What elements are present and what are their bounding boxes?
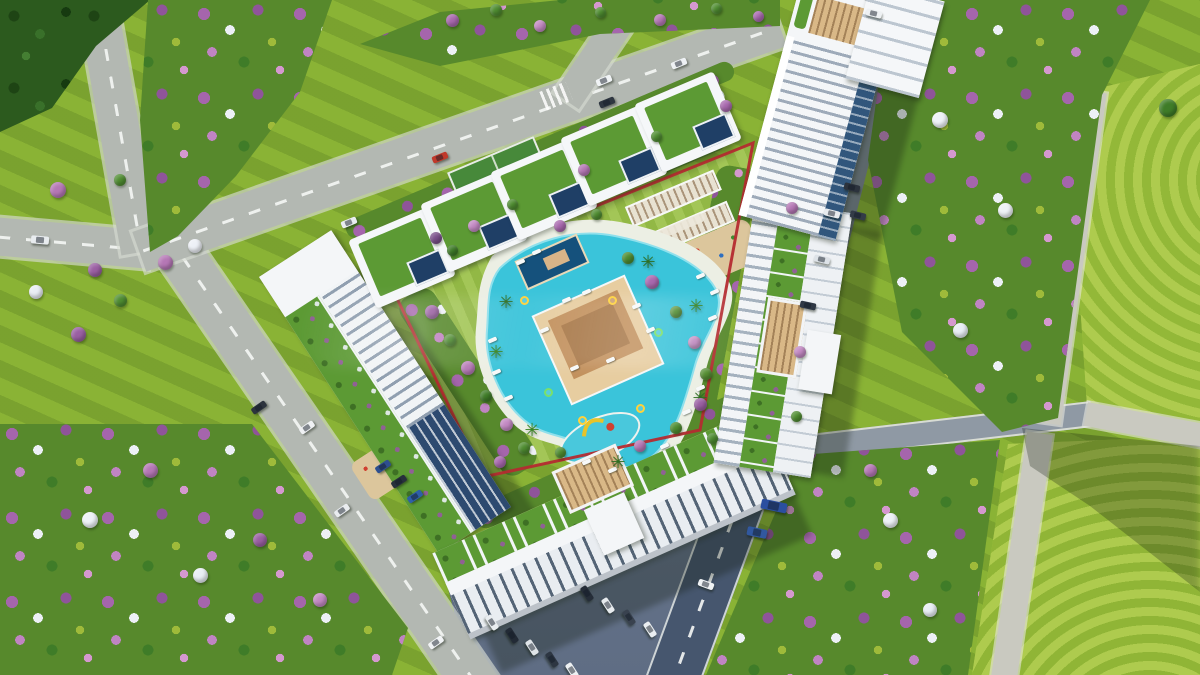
car — [406, 489, 423, 504]
car — [643, 620, 658, 637]
tree — [114, 294, 127, 307]
tree — [50, 182, 66, 198]
tree — [253, 533, 267, 547]
tree — [430, 232, 442, 244]
car — [823, 208, 840, 219]
tree — [188, 239, 202, 253]
car — [545, 650, 560, 667]
car — [485, 613, 500, 630]
tree — [883, 513, 898, 528]
car — [670, 57, 687, 69]
car — [760, 498, 788, 513]
tree — [654, 14, 666, 26]
tree — [468, 220, 480, 232]
car — [427, 635, 444, 650]
watermark-overlay — [300, 296, 840, 368]
tree — [711, 3, 722, 14]
tree — [480, 390, 492, 402]
tree — [651, 131, 662, 142]
lounger — [709, 288, 719, 295]
car — [697, 578, 714, 590]
tree — [193, 568, 208, 583]
lounger — [531, 248, 541, 255]
car — [565, 661, 580, 675]
car — [598, 96, 615, 108]
tree — [595, 7, 606, 18]
tree — [753, 11, 764, 22]
car — [31, 235, 50, 245]
palm-tree: ✳ — [639, 253, 657, 271]
lounger — [491, 368, 501, 375]
tree — [953, 323, 968, 338]
tree — [518, 442, 530, 454]
tree — [707, 433, 718, 444]
tree — [700, 368, 712, 380]
car — [298, 420, 315, 435]
tree — [634, 440, 646, 452]
lounger — [581, 288, 591, 295]
tree — [554, 220, 566, 232]
tree — [998, 203, 1013, 218]
tree — [158, 255, 173, 270]
lounger — [681, 408, 691, 415]
tree — [622, 252, 634, 264]
lounger — [503, 394, 513, 401]
car — [333, 503, 350, 518]
car — [431, 151, 448, 163]
tree — [591, 209, 602, 220]
car — [390, 474, 407, 489]
tree — [578, 164, 590, 176]
car — [505, 626, 520, 643]
tree — [446, 14, 459, 27]
pool-float — [578, 416, 587, 425]
tree — [645, 275, 659, 289]
car — [340, 216, 357, 228]
car — [525, 638, 540, 655]
palm-tree: ✳ — [523, 421, 541, 439]
tree — [71, 327, 86, 342]
car — [813, 254, 830, 264]
car — [250, 400, 267, 415]
lounger — [695, 272, 705, 279]
lounger — [515, 258, 525, 265]
tree — [447, 245, 458, 256]
car — [746, 526, 767, 539]
aerial-render-scene: ✳✳✳✳✳✳✳ — [0, 0, 1200, 675]
tree — [791, 411, 802, 422]
tree — [720, 100, 732, 112]
tree — [143, 463, 158, 478]
lounger — [659, 442, 669, 449]
tree — [932, 112, 948, 128]
tree — [500, 418, 513, 431]
tree — [923, 603, 937, 617]
tree — [786, 202, 798, 214]
tree — [864, 464, 877, 477]
tree — [670, 422, 682, 434]
car — [601, 596, 616, 613]
tree — [82, 512, 98, 528]
car — [843, 182, 860, 193]
car — [580, 584, 595, 601]
watermark-ring — [380, 308, 426, 354]
pool-float — [636, 404, 645, 413]
tree — [555, 447, 566, 458]
tree — [534, 20, 546, 32]
car — [595, 74, 612, 86]
car — [622, 608, 637, 625]
lounger — [581, 458, 591, 465]
car — [849, 210, 866, 221]
tree — [114, 174, 126, 186]
palm-tree: ✳ — [609, 453, 627, 471]
pool-float — [544, 388, 553, 397]
tree — [507, 199, 518, 210]
tree — [490, 4, 502, 16]
tree — [1159, 99, 1177, 117]
tree — [694, 398, 707, 411]
tree — [29, 285, 43, 299]
car — [374, 459, 391, 474]
tree — [494, 456, 506, 468]
tree — [88, 263, 102, 277]
car — [865, 8, 882, 19]
tree — [313, 593, 327, 607]
